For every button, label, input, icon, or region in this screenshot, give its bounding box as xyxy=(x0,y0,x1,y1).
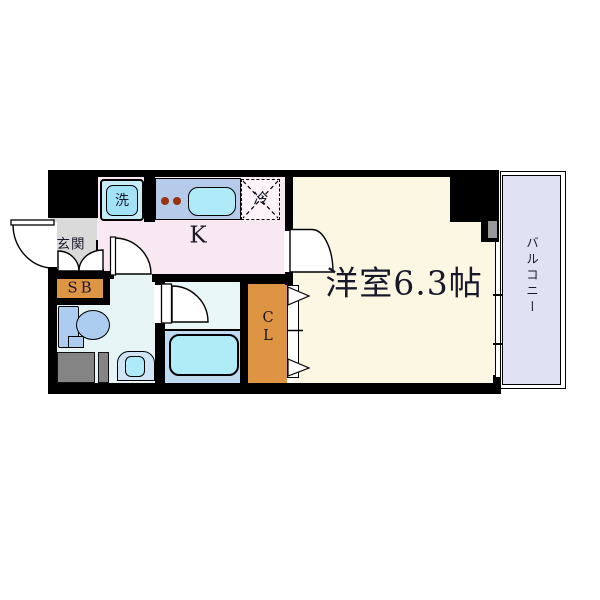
bathroom-door-opening xyxy=(154,285,166,323)
pillar-gray-insert xyxy=(488,221,497,238)
wall-shoebox-right xyxy=(103,271,110,305)
front-door-arc-icon xyxy=(13,225,50,268)
balcony-window xyxy=(495,242,501,377)
burner-icon-2 xyxy=(173,197,181,205)
sink-icon xyxy=(188,187,236,216)
kitchen-label: K xyxy=(189,225,206,248)
shoebox-label: SB xyxy=(67,281,94,296)
wall-shoebox-bottom xyxy=(48,298,110,305)
wall-topleft-pillar xyxy=(48,170,98,218)
entrance-label: 玄関 xyxy=(57,238,86,252)
washer-label: 洗 xyxy=(115,194,129,208)
counter-gray-large xyxy=(57,352,95,383)
floorplan: 洋室6.3帖 K 玄関 SB 洗 冷 C L バルコニー xyxy=(0,0,600,600)
bathtub-icon xyxy=(169,334,239,376)
closet-label: C L xyxy=(262,309,273,345)
wall-closet-left xyxy=(240,274,248,383)
balcony-label: バルコニー xyxy=(518,236,544,332)
wall-pillar-topright xyxy=(450,170,499,222)
entrance-step-line xyxy=(96,240,98,272)
entrance-threshold-line xyxy=(55,269,104,271)
toilet-handle-icon xyxy=(68,336,84,348)
main-room-label: 洋室6.3帖 xyxy=(325,267,482,300)
burner-icon-1 xyxy=(161,197,169,205)
wall-left-lower xyxy=(48,267,57,394)
balcony-window-tick-2 xyxy=(493,343,503,345)
kitchen-room-door-opening xyxy=(284,231,294,272)
wall-washer-counter-stub xyxy=(144,177,155,222)
bathroom-floor-divider xyxy=(165,329,240,331)
wall-washroom-top xyxy=(152,274,248,282)
closet-label-line1: C xyxy=(262,309,273,327)
toilet-bowl-icon xyxy=(76,310,110,340)
counter-gray-small xyxy=(98,352,109,383)
balcony-window-tick-1 xyxy=(493,294,503,296)
bathroom-upper-floor xyxy=(165,282,240,330)
closet-label-line2: L xyxy=(262,327,273,345)
wall-top xyxy=(48,170,455,177)
fridge-label: 冷 xyxy=(253,192,268,207)
wall-bottom xyxy=(48,383,501,394)
washbasin-bowl-icon xyxy=(125,356,145,377)
closet-door-track xyxy=(287,285,299,378)
